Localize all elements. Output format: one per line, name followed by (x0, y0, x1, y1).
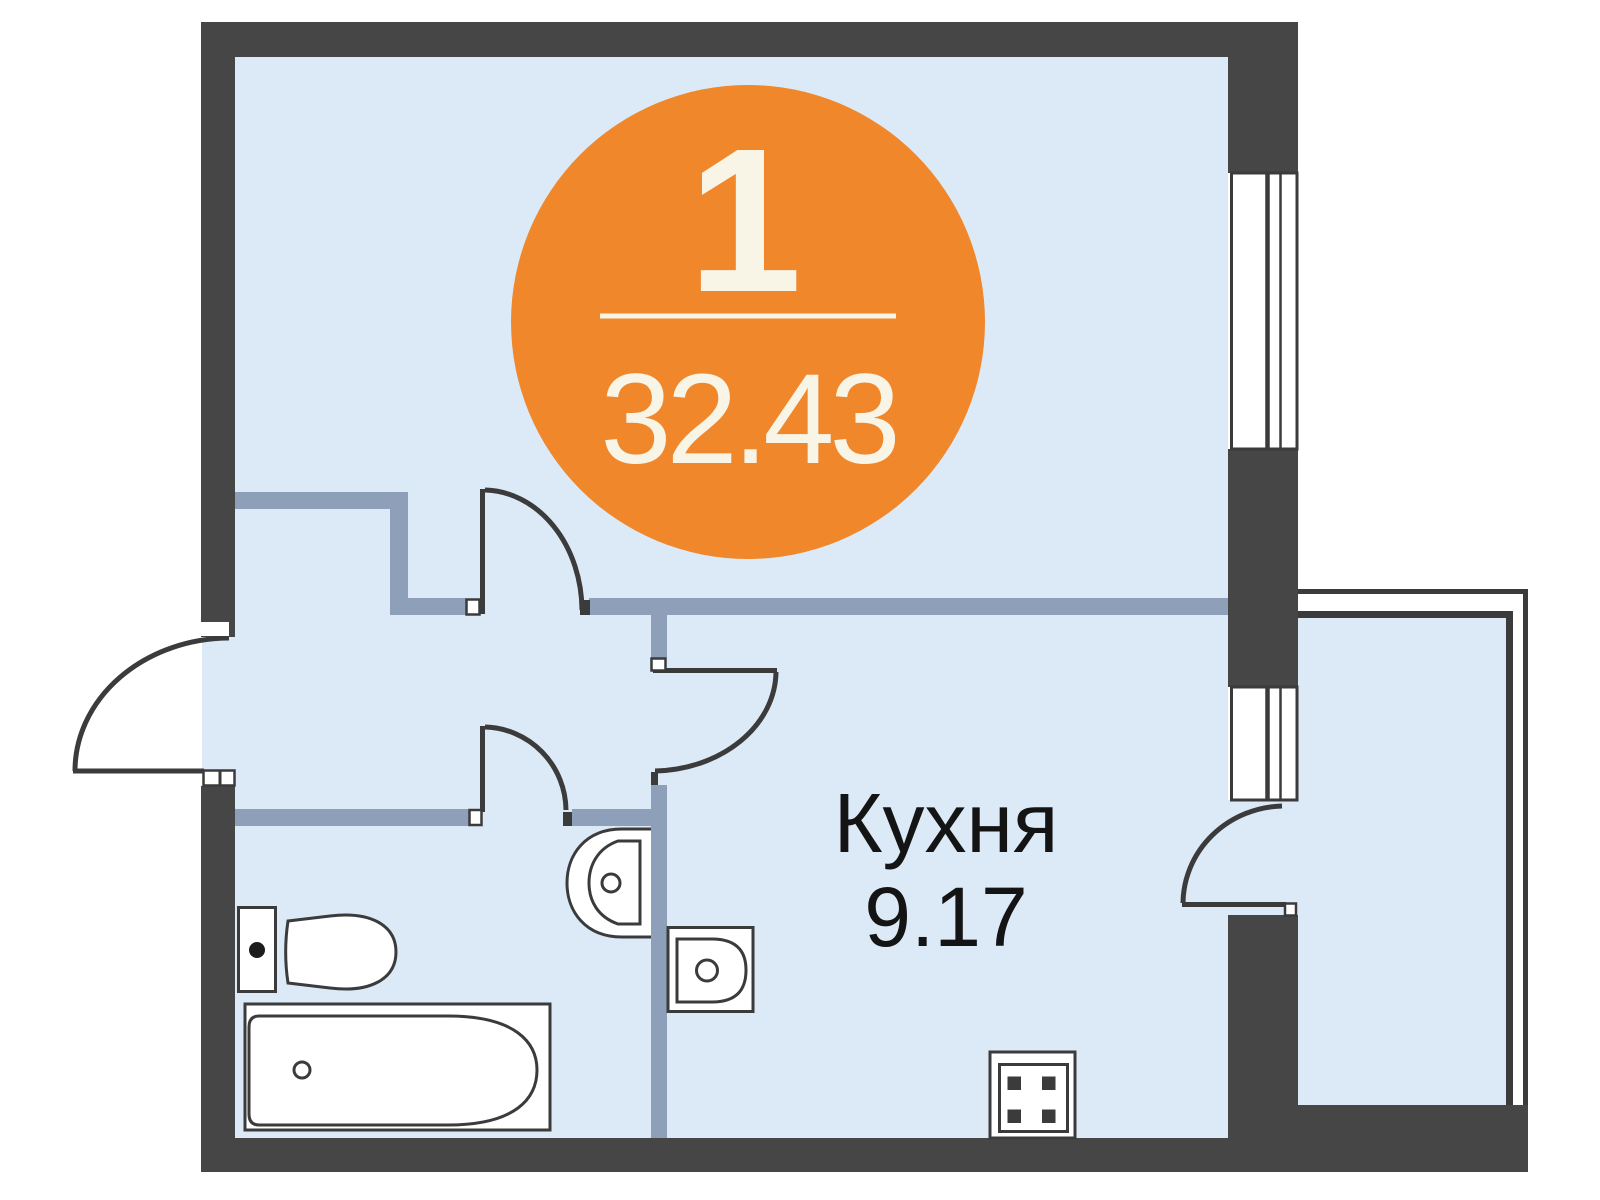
partition-niche-top (235, 492, 408, 509)
kitchen-sink (668, 928, 753, 1012)
balcony (1297, 589, 1528, 1172)
living-door-hinge-jamb (467, 600, 480, 615)
entry-opening-floor (202, 637, 235, 770)
jamb-bath-door-strike (563, 812, 572, 826)
balcony-floor (1297, 618, 1506, 1105)
entry-door-top-jamb (201, 622, 229, 636)
stove-burner-4 (1042, 1110, 1056, 1124)
room-labels: Кухня 9.17 (834, 776, 1059, 964)
wall-left-upper (201, 22, 235, 637)
wall-bottom (201, 1138, 1297, 1172)
kitchen-sink-drain (697, 960, 718, 981)
bathroom-sink-drain (602, 874, 620, 892)
bathtub-drain (294, 1062, 310, 1078)
wall-left-lower (201, 786, 235, 1172)
wall-right-upper (1228, 57, 1298, 173)
floor-plan: Кухня 9.17 1 32.43 (0, 0, 1600, 1200)
area-badge: 1 32.43 (511, 85, 985, 559)
wall-top (201, 22, 1298, 57)
partition-bath-top-left (235, 809, 469, 826)
toilet-flush-button (249, 942, 265, 958)
bathroom-sink (567, 829, 651, 937)
kitchen-name-label: Кухня (834, 776, 1059, 870)
balcony-bottom-wall (1297, 1105, 1528, 1172)
rooms-count: 1 (688, 106, 802, 335)
wall-right-middle (1228, 449, 1298, 687)
bathtub-outer (245, 1004, 550, 1130)
balcony-outer-frame-top (1297, 589, 1528, 594)
partition-hall-room-left (390, 598, 466, 615)
kitchen-area-label: 9.17 (864, 870, 1028, 964)
floor-plan-canvas: Кухня 9.17 1 32.43 (0, 0, 1600, 1200)
toilet-bowl (286, 915, 396, 989)
total-area: 32.43 (600, 348, 895, 491)
kitchen-door-hinge-jamb (652, 659, 666, 671)
bathroom-door-hinge-jamb (470, 810, 482, 825)
wall-right-lower (1228, 915, 1298, 1172)
partition-niche-right (390, 509, 408, 600)
bathtub (245, 1004, 550, 1130)
jamb-kitchen-door-strike (651, 772, 658, 785)
stove-burner-2 (1042, 1077, 1056, 1091)
stove-burner-1 (1008, 1077, 1022, 1091)
partition-bath-kitchen (651, 785, 667, 1138)
toilet (239, 908, 397, 992)
stove (990, 1052, 1075, 1138)
partition-bath-top-right (572, 809, 651, 826)
stove-burner-3 (1008, 1110, 1022, 1124)
partition-hall-kitchen-stub (651, 615, 667, 658)
balcony-door-hinge-jamb (1285, 904, 1296, 916)
partition-room-kitchen (589, 598, 1228, 615)
balcony-outer-frame-right (1523, 589, 1528, 1172)
